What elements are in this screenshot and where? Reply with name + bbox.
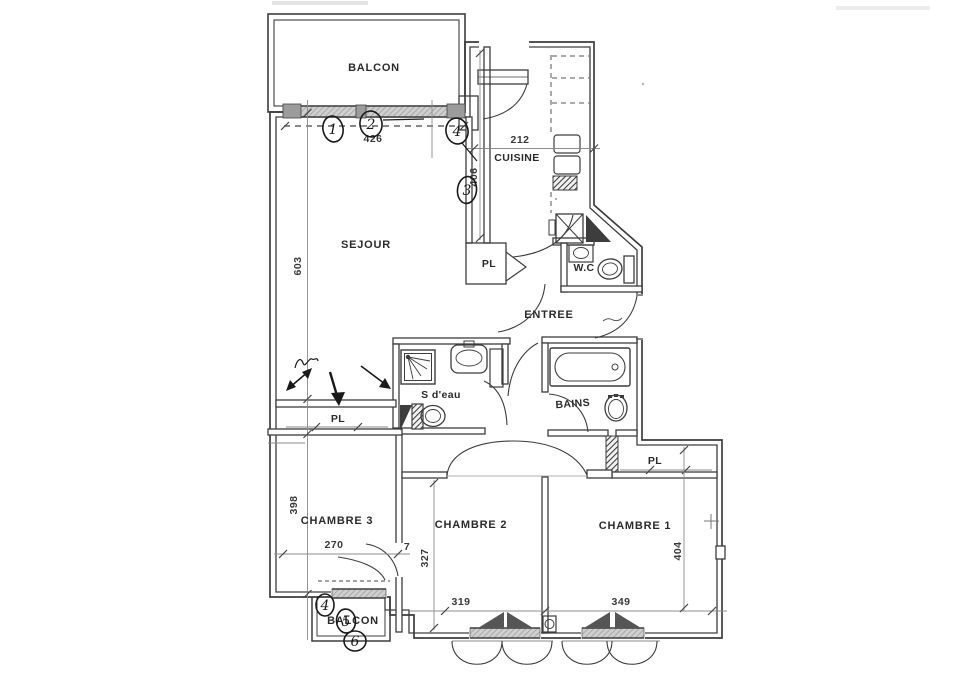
label-chambre2: CHAMBRE 2 <box>435 519 508 531</box>
circled-mark-b6: 6 <box>351 634 360 650</box>
dim-398: 398 <box>288 495 300 514</box>
circled-mark-1: 1 <box>329 122 338 138</box>
circled-mark-b5: 5 <box>342 614 351 630</box>
label-pl-sejour: PL <box>331 413 345 425</box>
label-cuisine: CUISINE <box>494 152 539 164</box>
label-sejour: SEJOUR <box>341 239 391 251</box>
dim-319: 319 <box>451 596 470 608</box>
scan-speck <box>555 198 557 200</box>
label-chambre3: CHAMBRE 3 <box>301 515 374 527</box>
label-pl-entree: PL <box>482 258 496 270</box>
label-wc: W.C <box>573 262 594 274</box>
floor-plan-drawing: BALCON CUISINE SEJOUR W.C ENTREE PL S d'… <box>0 0 960 687</box>
circled-mark-4: 4 <box>452 124 462 140</box>
dim-327: 327 <box>419 548 431 567</box>
dim-212: 212 <box>510 134 529 146</box>
circled-mark-2: 2 <box>366 117 376 133</box>
label-s-deau: S d'eau <box>421 389 461 401</box>
dim-404: 404 <box>672 541 684 560</box>
scan-streak <box>272 1 368 5</box>
label-balcon-top: BALCON <box>348 62 400 74</box>
floor-plan-sheet: BALCON CUISINE SEJOUR W.C ENTREE PL S d'… <box>0 0 960 687</box>
dim-603: 603 <box>292 256 304 275</box>
label-chambre1: CHAMBRE 1 <box>599 520 672 532</box>
dim-270: 270 <box>324 539 343 551</box>
wall-notch <box>716 546 725 559</box>
label-pl-chambre1: PL <box>648 455 662 467</box>
circled-mark-b4: 4 <box>320 598 330 614</box>
stove-icon <box>553 176 577 190</box>
scan-speck <box>642 83 644 85</box>
dim-349: 349 <box>611 596 630 608</box>
label-bains: BAINS <box>555 397 590 411</box>
scan-streak <box>836 6 930 10</box>
circled-mark-3: 3 <box>463 183 472 199</box>
label-entree: ENTREE <box>524 309 573 321</box>
dim-7: 7 <box>404 541 410 553</box>
label-balcon-bottom: BALCON <box>327 615 379 627</box>
